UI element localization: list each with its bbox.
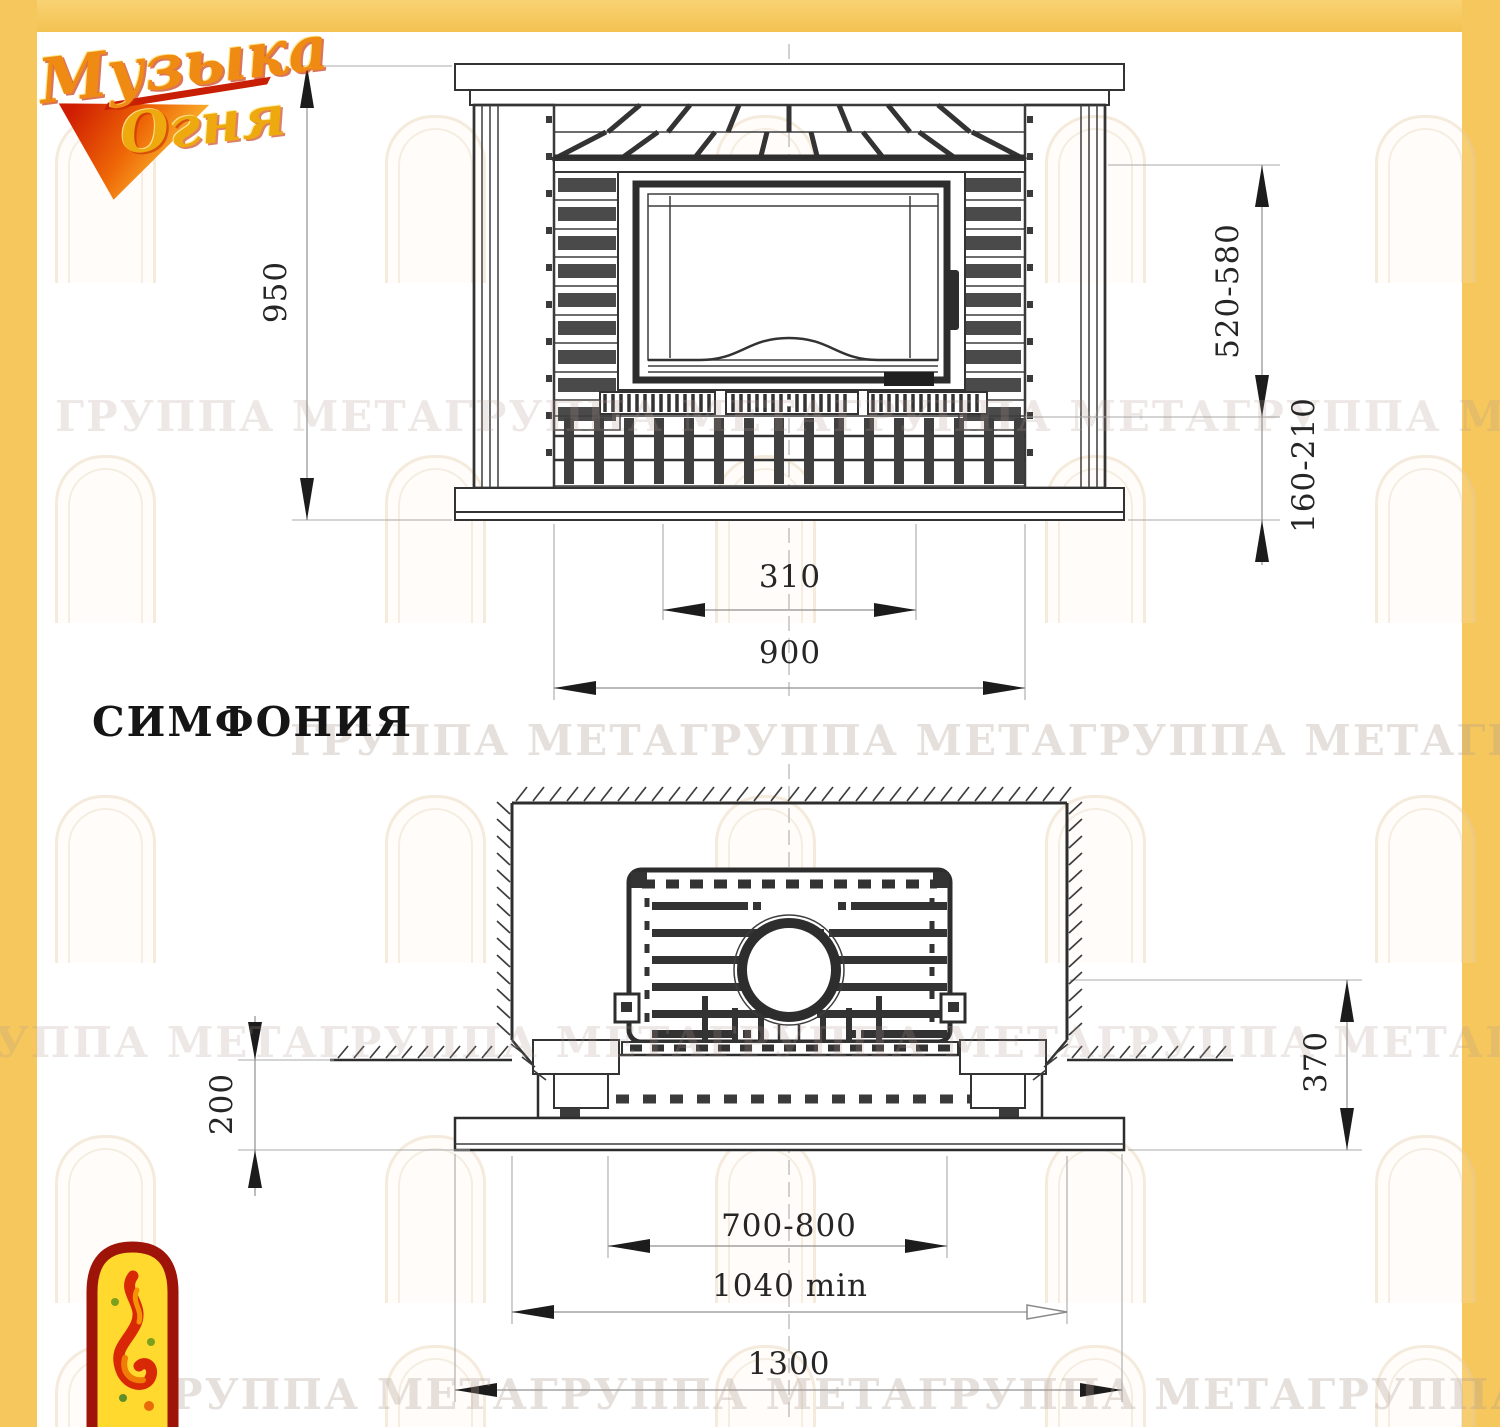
hatch-ticks bbox=[516, 787, 1071, 801]
fire-emblem bbox=[85, 1238, 180, 1427]
hatch-ticks bbox=[1069, 802, 1082, 1035]
dim-overall-width: 1300 bbox=[748, 1346, 831, 1382]
plan-view-drawing bbox=[330, 764, 1233, 1424]
fire-emblem-icon bbox=[85, 1238, 180, 1427]
catalog-page: .s1{stroke:#3d3d3d;stroke-width:1.5;fill… bbox=[0, 0, 1500, 1427]
watermark-text: ГРУППА МЕТАГРУППА МЕТАГРУППА МЕТАГРУППА … bbox=[0, 1018, 1500, 1067]
model-title: СИМФОНИЯ bbox=[92, 698, 413, 746]
brand-logo: Музыка Огня bbox=[10, 6, 310, 206]
dim-body-width: 900 bbox=[759, 635, 821, 671]
watermark-text: ГРУППА МЕТАГРУППА МЕТАГРУППА МЕТАГРУППА … bbox=[55, 392, 1500, 441]
watermark-text: ГРУППА МЕТАГРУППА МЕТАГРУППА МЕТАГРУППА … bbox=[290, 716, 1500, 765]
front-view-drawing bbox=[455, 44, 1124, 696]
dim-min-width: 1040 min bbox=[712, 1268, 868, 1304]
dim-opening-width: 310 bbox=[759, 559, 821, 595]
dim-niche-width: 700-800 bbox=[721, 1208, 857, 1244]
hatch-ticks bbox=[497, 802, 510, 1035]
dim-hearth-front-depth: 200 bbox=[204, 1073, 240, 1135]
dim-overall-height: 950 bbox=[258, 261, 294, 323]
dim-side-depth: 370 bbox=[1298, 1031, 1334, 1093]
dim-firebox-height: 520-580 bbox=[1210, 223, 1246, 359]
dim-hearth-height: 160-210 bbox=[1286, 397, 1322, 533]
